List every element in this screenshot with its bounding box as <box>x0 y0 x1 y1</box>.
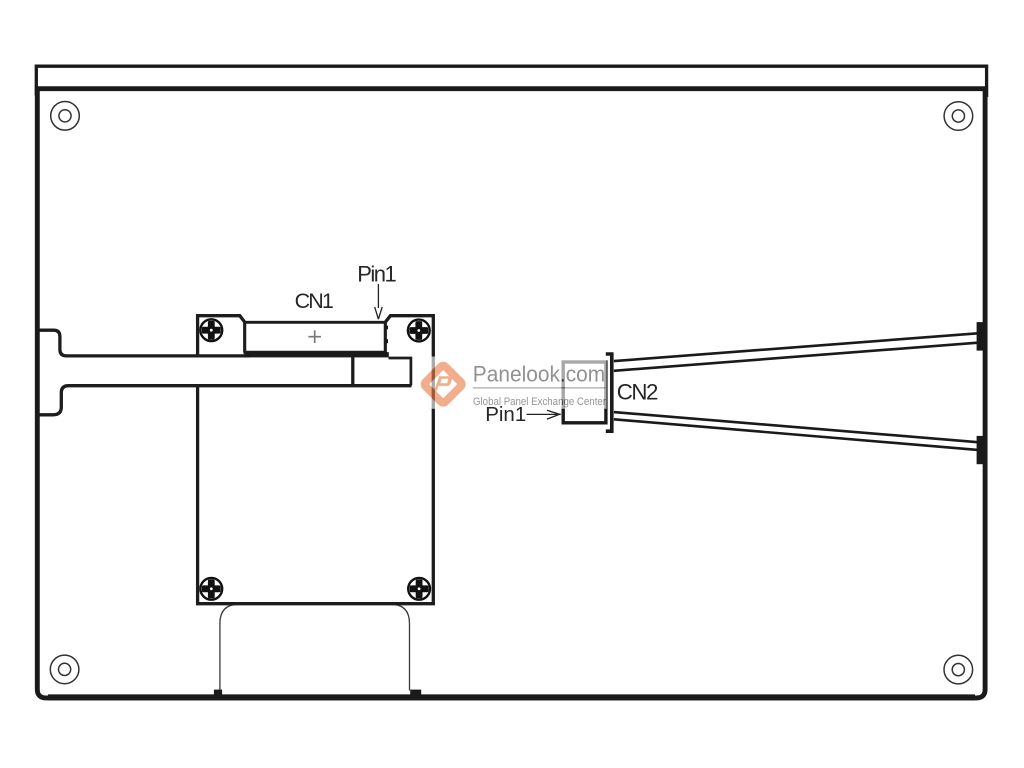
svg-text:Pin1: Pin1 <box>485 403 526 426</box>
svg-text:Panelook.com: Panelook.com <box>473 361 605 386</box>
svg-text:Pin1: Pin1 <box>357 261 396 286</box>
svg-text:CN2: CN2 <box>617 380 658 405</box>
svg-text:CN1: CN1 <box>295 289 333 313</box>
